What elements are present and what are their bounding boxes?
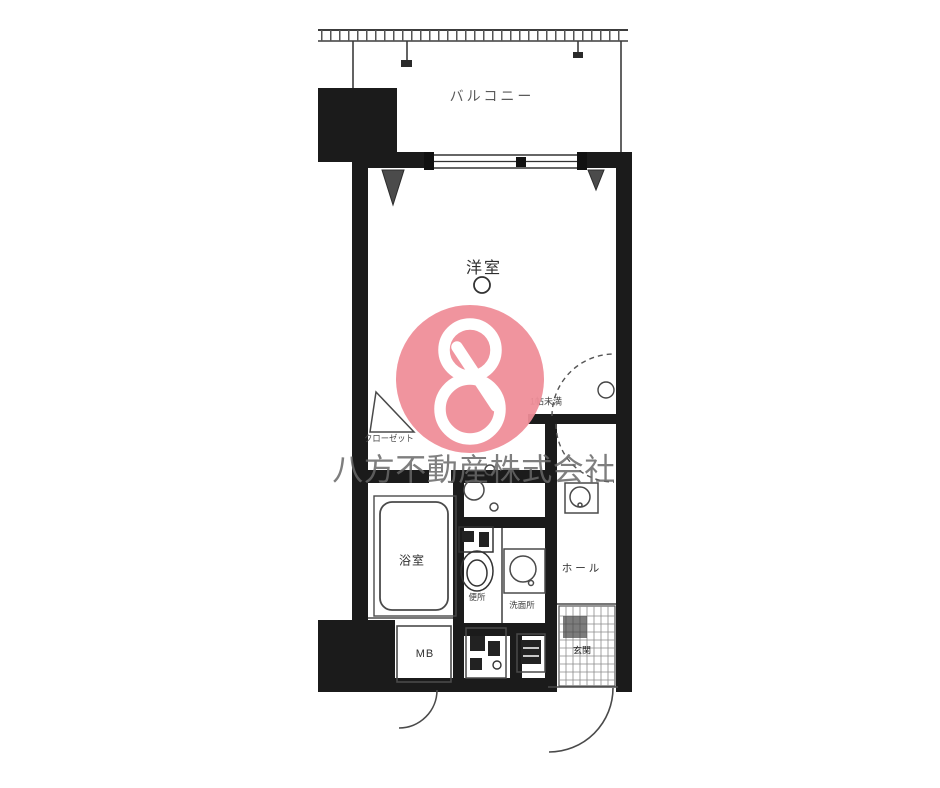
watermark-company-name: 八方不動産株式会社 [332, 445, 616, 490]
watermark-logo [0, 0, 940, 788]
floor-plan-image: バルコニー 洋室 クローゼット 1帖未満 浴室 便所 洗面所 ホール 玄関 MB… [0, 0, 940, 788]
